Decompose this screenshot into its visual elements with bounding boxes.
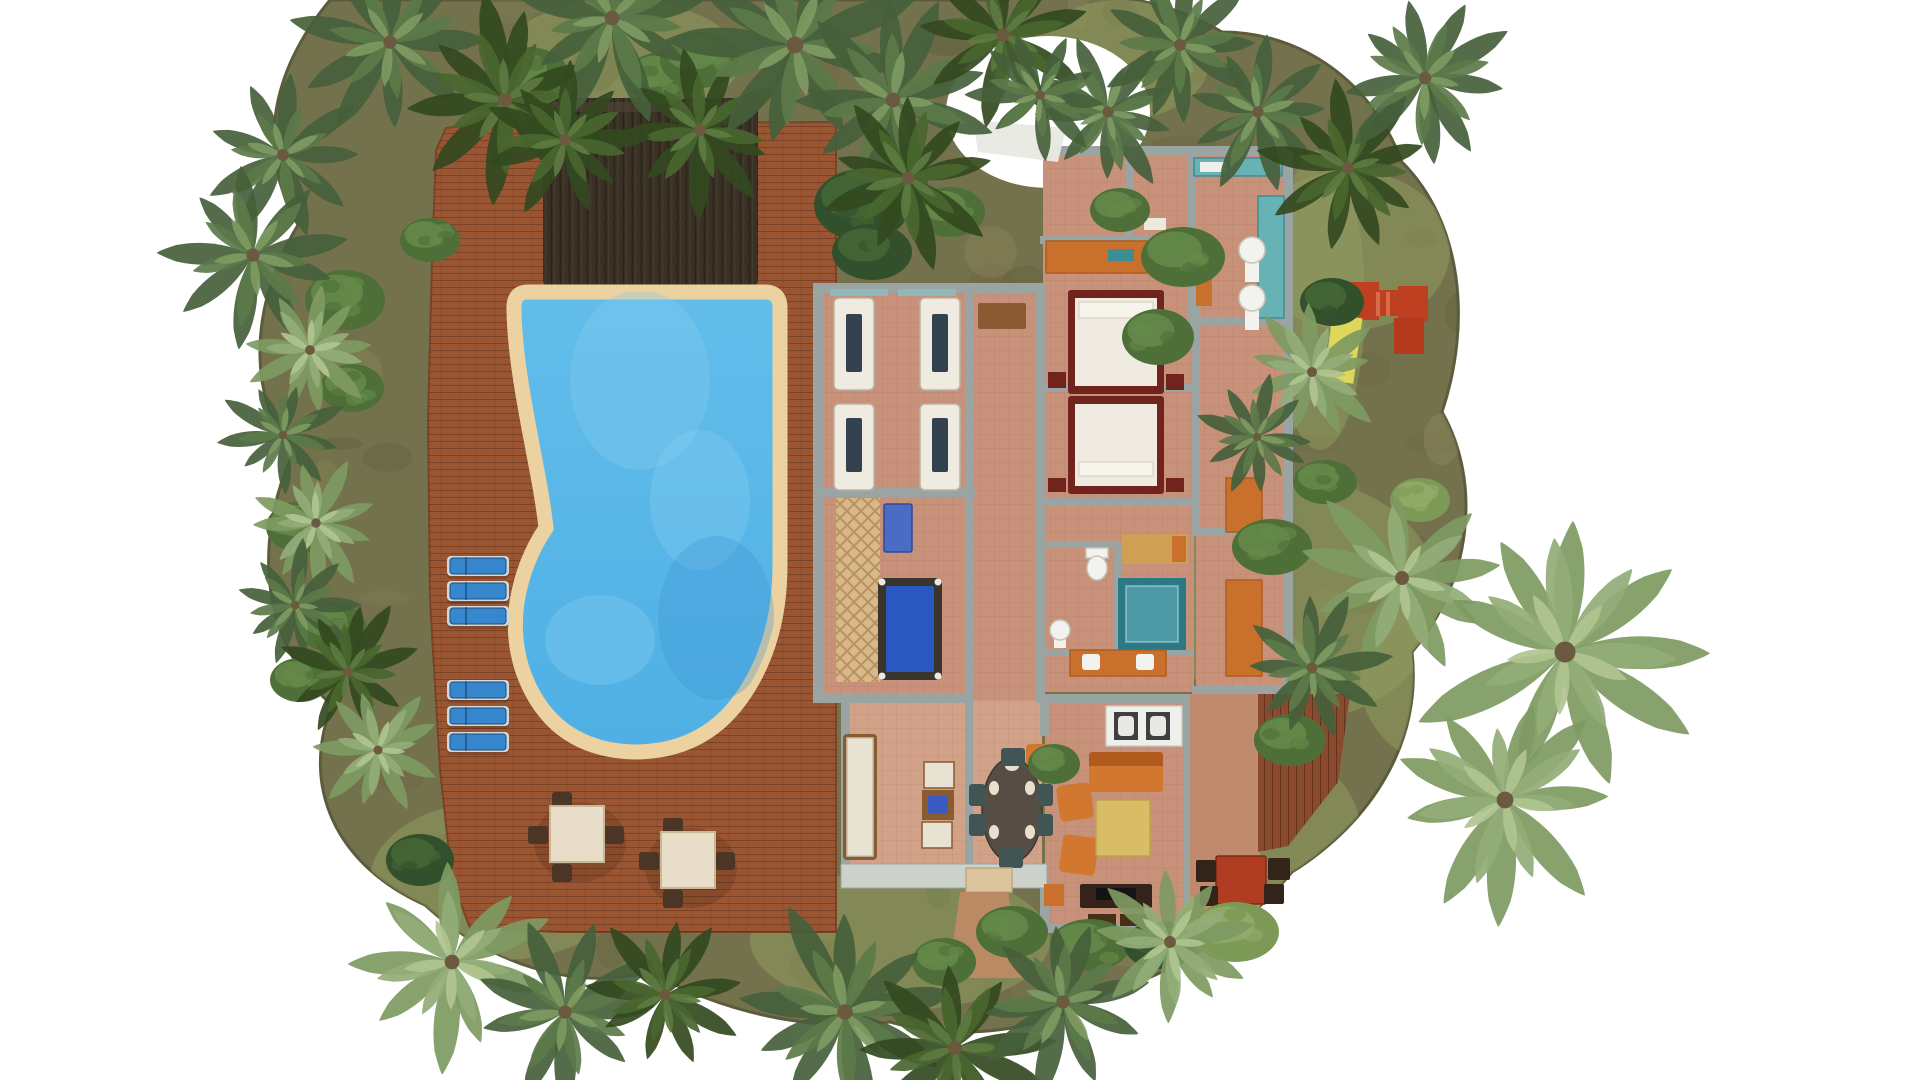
area-rug [1096, 800, 1150, 856]
kitchen-sink-1 [1118, 716, 1134, 736]
bush-tuft [1057, 766, 1070, 775]
dining-plate-4 [989, 825, 999, 839]
spa-window-2 [898, 289, 956, 296]
bush-tuft [1122, 203, 1137, 213]
palm-crown-center [787, 37, 804, 54]
bush [1122, 309, 1194, 365]
rear-table-red [1216, 856, 1266, 904]
palm-crown-center [373, 745, 382, 754]
bush-tuft [1034, 752, 1047, 761]
lounger-pad [450, 583, 506, 599]
bush-tuft [1108, 205, 1123, 215]
bush-tuft [1291, 738, 1309, 749]
rear-chair-1 [1196, 860, 1216, 882]
vanity-basin-2 [1136, 654, 1154, 670]
palm-crown-center [1307, 367, 1317, 377]
swimming-pool [514, 290, 780, 752]
villa-floor-plan-stage [0, 0, 1920, 1080]
palm-crown-center [1164, 936, 1176, 948]
outdoor-chair [663, 890, 683, 908]
living-sofa-back [1089, 752, 1163, 768]
palm-crown-center [1174, 39, 1186, 51]
palm-crown-center [1035, 90, 1045, 100]
bush-tuft [1278, 553, 1298, 565]
sun-lounger [447, 606, 509, 629]
pool-table-felt [886, 586, 934, 672]
dining-chair-left-2 [969, 814, 985, 836]
dining-chair-bottom [999, 848, 1023, 868]
bush-tuft [948, 946, 964, 957]
palm-crown-center [445, 955, 460, 970]
lounger-pad [450, 682, 506, 698]
bush [1028, 744, 1080, 784]
bath-pedestal-sink [1050, 620, 1070, 640]
living-sofa-seat [1089, 766, 1163, 792]
bush-tuft [424, 850, 441, 861]
wall-living-top [1043, 694, 1192, 703]
palm-crown-center [996, 28, 1009, 41]
bush [1141, 227, 1225, 287]
bush-tuft [341, 289, 361, 302]
sun-lounger [447, 706, 509, 729]
foyer-bench [1144, 218, 1166, 230]
bath-bench-pillow [1172, 536, 1186, 562]
wall-mid-vertical-low [965, 694, 973, 870]
bush-tuft [1258, 528, 1278, 540]
pool-highlight [545, 595, 655, 685]
palm-crown-center [837, 1004, 852, 1019]
bed-1-nightstand-right [1166, 374, 1184, 390]
palm-crown-center [246, 248, 259, 261]
palm-crown-center [1056, 995, 1069, 1008]
lounger-pad [450, 734, 506, 750]
palm-crown-center [277, 149, 289, 161]
living-side-table [1044, 884, 1064, 906]
bush-tuft [1413, 502, 1428, 512]
palm-crown-center [1342, 162, 1354, 174]
bush-tuft [1129, 339, 1147, 351]
blue-shelf-unit [884, 504, 912, 552]
bush-tuft [429, 236, 444, 246]
bush-tuft [360, 389, 376, 400]
playground-tower [1398, 286, 1428, 322]
bush-tuft [396, 851, 413, 862]
bush [400, 218, 460, 262]
bush-tuft [924, 970, 940, 981]
palm-crown-center [1555, 642, 1576, 663]
outdoor-chair [639, 852, 659, 870]
palm-crown-center [1307, 663, 1318, 674]
lounger-pad [450, 708, 506, 724]
bush-tuft [1135, 324, 1153, 336]
bush-tuft [344, 277, 364, 290]
bush-tuft [1395, 487, 1410, 497]
palm-crown-center [305, 345, 315, 355]
palm-crown-center [605, 11, 620, 26]
bush-tuft [1099, 952, 1119, 963]
bush-tuft [866, 241, 886, 253]
playground-rail-1 [1376, 292, 1380, 316]
bush-tuft [1326, 291, 1342, 302]
lounge-coffee-table-cloth [928, 796, 948, 814]
outdoor-table [550, 806, 604, 862]
palm-crown-center [343, 667, 353, 677]
bush-tuft [1320, 305, 1336, 316]
bush-tuft [1409, 485, 1424, 495]
palm-tree [1395, 702, 1608, 928]
bush-tuft [1248, 548, 1268, 560]
dining-plate-6 [1025, 825, 1035, 839]
dining-chair-top [1001, 748, 1025, 766]
palm-crown-center [558, 1005, 571, 1018]
bush-tuft [1300, 468, 1316, 478]
daybed-2-pad [932, 314, 948, 372]
palm-crown-center [498, 93, 512, 107]
wall-corridor-right [1036, 283, 1045, 703]
bush [1090, 188, 1150, 232]
palm-crown-center [1252, 106, 1263, 117]
palm-crown-center [1395, 571, 1409, 585]
sun-lounger [447, 581, 509, 604]
playground-rail-2 [1386, 292, 1390, 316]
rear-chair-4 [1264, 884, 1284, 904]
lounge-chair-2 [922, 822, 952, 848]
bush-tuft [995, 914, 1013, 925]
lounge-chair-1 [924, 762, 954, 788]
bed-1-nightstand-left [1048, 372, 1066, 388]
bush-tuft [1188, 252, 1209, 265]
palm-crown-center [1253, 433, 1261, 441]
dining-plate-5 [1025, 781, 1035, 795]
bush-tuft [1038, 762, 1051, 771]
bush-tuft [293, 677, 308, 687]
dining-chair-left-1 [969, 784, 985, 806]
veranda-lattice-texture [836, 498, 880, 682]
bed-2-pillow [1079, 462, 1153, 476]
outdoor-table [661, 832, 715, 888]
bed-2-nightstand-left [1048, 478, 1066, 492]
daybed-4-pad [932, 418, 948, 472]
pedestal-sink-2 [1239, 285, 1265, 311]
wall-bedroom2-bottom [1040, 498, 1200, 506]
bush [1232, 519, 1312, 575]
palm-crown-center [311, 518, 321, 528]
pool-table-pocket-4 [935, 673, 942, 680]
bush-tuft [885, 247, 905, 259]
bush-tuft [1335, 466, 1351, 476]
palm-crown-center [1102, 106, 1113, 117]
bush-tuft [920, 953, 936, 964]
bush-tuft [1316, 475, 1332, 485]
bush [1293, 460, 1357, 504]
pool-table-pocket-2 [935, 579, 942, 586]
palm-crown-center [694, 124, 706, 136]
bush [832, 224, 912, 280]
spa-window-1 [830, 289, 888, 296]
palm-crown-center [279, 431, 288, 440]
toilet-bowl [1087, 556, 1107, 580]
palm-crown-center [291, 601, 300, 610]
daybed-3-pad [846, 418, 862, 472]
terrace-steps [966, 868, 1012, 892]
bush-tuft [1223, 908, 1245, 921]
floor-plan-scene [0, 0, 1920, 1080]
pedestal-sink-1 [1239, 237, 1265, 263]
bush-tuft [1099, 217, 1114, 227]
bush-tuft [1423, 489, 1438, 499]
lounger-pad [450, 608, 506, 624]
wall-wc-top [1040, 541, 1124, 548]
lounge-sofa-cushions [847, 738, 873, 856]
bush-tuft [1276, 527, 1296, 539]
floor-corridor-tiles [970, 288, 1040, 700]
daybed-1-pad [846, 314, 862, 372]
corridor-doormat [978, 303, 1026, 329]
shower-tiles [1126, 586, 1178, 642]
sun-lounger [447, 732, 509, 755]
playground-tower-leg [1394, 318, 1424, 354]
living-armchair-1 [1056, 782, 1095, 822]
wall-mid-vertical [965, 283, 974, 698]
bush-tuft [989, 925, 1007, 936]
outdoor-chair [604, 826, 624, 844]
kitchen-sink-2 [1150, 716, 1166, 736]
vanity-basin-1 [1082, 654, 1100, 670]
palm-crown-center [383, 35, 396, 48]
lounger-pad [450, 558, 506, 574]
bush-tuft [281, 685, 296, 695]
outdoor-chair [528, 826, 548, 844]
sun-lounger [447, 680, 509, 703]
bush-tuft [400, 861, 417, 872]
palm-crown-center [948, 1041, 962, 1055]
palm-crown-center [1497, 792, 1514, 809]
dining-chair-right-2 [1037, 814, 1053, 836]
pool-table-pocket-1 [879, 579, 886, 586]
bush-tuft [1278, 540, 1298, 552]
bedroom1-teal-tray [1108, 249, 1134, 261]
wall-living-left-stub-top [1040, 694, 1049, 736]
wall-left-wing-bottom [813, 694, 970, 703]
palm-crown-center [1419, 72, 1432, 85]
dining-plate-3 [989, 781, 999, 795]
dining-chair-right-1 [1037, 784, 1053, 806]
living-armchair-2 [1059, 834, 1100, 877]
palm-crown-center [659, 989, 670, 1000]
bush-tuft [1123, 213, 1138, 223]
palm-crown-center [902, 172, 915, 185]
palm-crown-center [886, 93, 901, 108]
rear-chair-2 [1268, 858, 1290, 880]
outdoor-chair [715, 852, 735, 870]
outdoor-chair [552, 864, 572, 882]
bush-tuft [1162, 338, 1180, 350]
palm-crown-center [559, 134, 570, 145]
bush-tuft [1063, 753, 1076, 762]
bed-2-nightstand-right [1166, 478, 1184, 492]
bush-tuft [281, 671, 296, 681]
pool-table-pocket-3 [879, 673, 886, 680]
sun-lounger [447, 556, 509, 579]
